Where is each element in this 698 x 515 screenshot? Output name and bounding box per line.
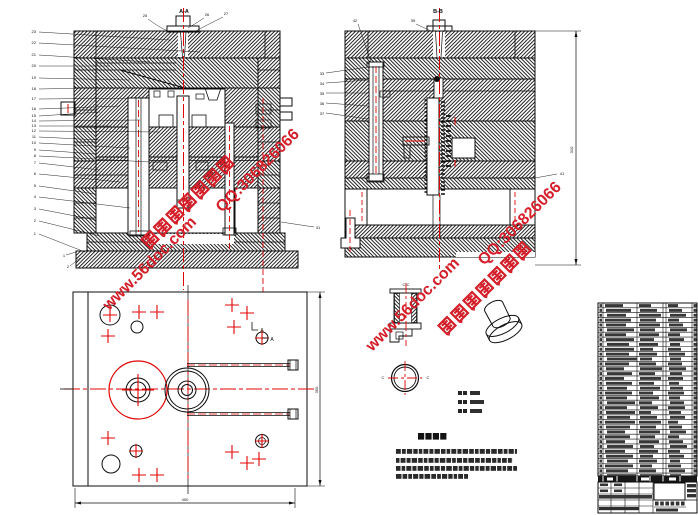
svg-text:10: 10 bbox=[32, 140, 37, 145]
svg-text:42: 42 bbox=[353, 18, 358, 23]
svg-text:20: 20 bbox=[32, 63, 37, 68]
svg-text:18: 18 bbox=[32, 86, 37, 91]
svg-text:22: 22 bbox=[32, 40, 37, 45]
svg-text:26: 26 bbox=[205, 12, 210, 17]
svg-text:19: 19 bbox=[32, 75, 37, 80]
svg-text:33: 33 bbox=[320, 71, 325, 76]
svg-text:39: 39 bbox=[411, 18, 416, 23]
svg-text:25: 25 bbox=[143, 13, 148, 18]
svg-text:16: 16 bbox=[32, 106, 37, 111]
svg-text:A-A: A-A bbox=[179, 9, 189, 15]
svg-text:12: 12 bbox=[32, 128, 37, 133]
svg-text:35: 35 bbox=[320, 91, 325, 96]
svg-text:27: 27 bbox=[224, 11, 229, 16]
svg-text:31: 31 bbox=[316, 225, 321, 230]
svg-text:37: 37 bbox=[320, 111, 325, 116]
svg-text:21: 21 bbox=[32, 52, 37, 57]
svg-text:310: 310 bbox=[569, 146, 574, 153]
svg-text:C: C bbox=[382, 375, 385, 380]
svg-text:400: 400 bbox=[182, 497, 189, 502]
svg-text:350: 350 bbox=[314, 386, 319, 393]
svg-text:B-B: B-B bbox=[433, 9, 443, 15]
svg-text:17: 17 bbox=[32, 96, 37, 101]
svg-text:C: C bbox=[427, 375, 430, 380]
svg-text:C-C: C-C bbox=[402, 282, 409, 287]
svg-text:34: 34 bbox=[320, 81, 325, 86]
svg-text:41: 41 bbox=[560, 171, 565, 176]
svg-text:23: 23 bbox=[32, 29, 37, 34]
svg-text:36: 36 bbox=[320, 101, 325, 106]
